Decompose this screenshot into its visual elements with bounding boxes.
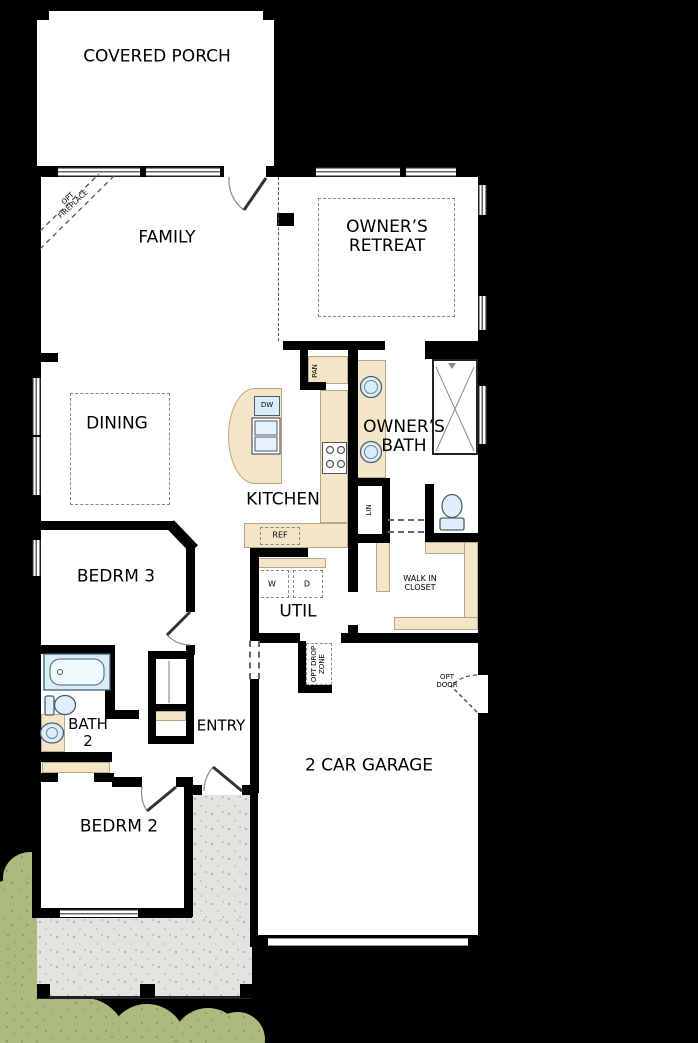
fixture-label-dryer: D	[304, 581, 310, 590]
entry-right-wall	[250, 679, 259, 793]
floor-plan: COVERED PORCH FAMILY OWNER’S RETREAT DIN…	[0, 0, 698, 1043]
bedrm2-closet-wall	[40, 773, 58, 782]
wall-stub	[277, 213, 294, 226]
bath2-right-wall	[105, 645, 115, 717]
option-label-door: OPT DOOR	[432, 674, 462, 690]
wall-stub	[41, 353, 58, 362]
window	[478, 296, 487, 330]
room-label-bath2: BATH 2	[63, 716, 113, 750]
cased-opening	[249, 641, 260, 679]
bedrm2-right-wall	[184, 777, 193, 917]
shower-top-wall	[425, 350, 478, 359]
fixture-label-washer: W	[268, 581, 276, 590]
room-label-family: FAMILY	[138, 228, 195, 247]
utility-counter	[254, 558, 326, 568]
fixture-label-dishwasher: DW	[261, 402, 273, 410]
closet-wall	[186, 651, 194, 743]
bedrm2-top-wall	[112, 777, 142, 787]
linen-wall	[348, 534, 390, 543]
porch-post	[140, 984, 155, 998]
ceiling-break-line	[278, 177, 279, 341]
room-label-entry: ENTRY	[197, 718, 246, 735]
bedrm2-closet-wall	[94, 773, 114, 782]
room-label-bedrm3: BEDRM 3	[77, 567, 155, 586]
room-label-covered-porch: COVERED PORCH	[83, 47, 231, 66]
garage-top-wall	[341, 633, 478, 643]
window	[146, 167, 220, 177]
window	[406, 167, 456, 177]
entry-right-wall	[250, 548, 259, 641]
bedrm3-top-wall	[34, 521, 174, 530]
porch-left-wall	[34, 10, 37, 173]
closet-wall	[148, 736, 194, 744]
house-right-wall	[478, 166, 487, 950]
bath2-top-wall	[34, 645, 115, 654]
bedrm2-door-opening	[142, 777, 176, 787]
garage-left-wall	[250, 793, 258, 938]
cased-opening	[388, 519, 424, 533]
wic-shelf-bottom	[394, 617, 478, 630]
window	[478, 185, 487, 215]
fixture-label-refrigerator: REF	[272, 532, 287, 541]
entry-closet-shelf	[153, 711, 186, 721]
room-label-dining: DINING	[86, 414, 148, 433]
wic-shelf-left	[376, 542, 390, 592]
window	[32, 378, 41, 435]
wic-top-wall	[425, 533, 478, 542]
fixture-label-pantry: PAN	[312, 364, 320, 378]
fixture-label-linen: LIN	[366, 504, 374, 515]
garage-door-opening	[268, 938, 468, 946]
covered-porch-floor	[37, 11, 274, 166]
toilet-room-wall	[425, 484, 434, 533]
room-label-owners-bath: OWNER’S BATH	[354, 418, 454, 456]
window	[316, 167, 400, 177]
vestibule-wall	[298, 685, 332, 693]
room-label-owners-retreat: OWNER’S RETREAT	[330, 218, 445, 256]
window	[32, 540, 41, 576]
room-label-bedrm2: BEDRM 2	[80, 817, 158, 836]
room-label-kitchen: KITCHEN	[246, 490, 320, 509]
kitchen-bath-wall	[348, 348, 358, 592]
porch-post	[240, 984, 252, 998]
owners-retreat-ceiling	[318, 198, 455, 317]
room-label-garage: 2 CAR GARAGE	[305, 756, 433, 775]
front-door-opening	[202, 785, 242, 795]
closet-wall	[148, 704, 194, 711]
bedrm3-right-wall	[186, 545, 195, 612]
range	[322, 442, 347, 474]
vestibule-wall	[298, 641, 306, 689]
window	[60, 909, 138, 917]
window	[478, 386, 487, 444]
bath-doorway	[385, 341, 425, 350]
linen-wall	[348, 478, 390, 486]
util-top-wall	[250, 548, 308, 557]
family-door-opening	[224, 166, 266, 177]
dining-ceiling	[70, 393, 170, 505]
opt-door-opening	[478, 675, 488, 713]
closet-wall	[148, 651, 156, 743]
porch-right-wall	[274, 10, 277, 173]
porch-post	[37, 984, 50, 998]
porch-top-wall	[34, 8, 277, 11]
room-label-util: UTIL	[279, 602, 316, 621]
porch-post	[36, 8, 49, 20]
bedrm3-door-opening	[186, 612, 195, 645]
retreat-bottom-wall	[283, 341, 478, 350]
bath2-vanity	[41, 714, 65, 752]
bedrm2-closet-shelf	[42, 762, 110, 773]
room-label-walk-in-closet: WALK IN CLOSET	[397, 575, 443, 593]
entry-floor	[192, 595, 252, 785]
window	[32, 437, 41, 495]
pantry-wall	[300, 382, 326, 390]
window	[58, 167, 140, 177]
bedrm2-closet-wall	[40, 756, 112, 762]
option-label-drop-zone: OPT DROP ZONE	[311, 644, 327, 684]
